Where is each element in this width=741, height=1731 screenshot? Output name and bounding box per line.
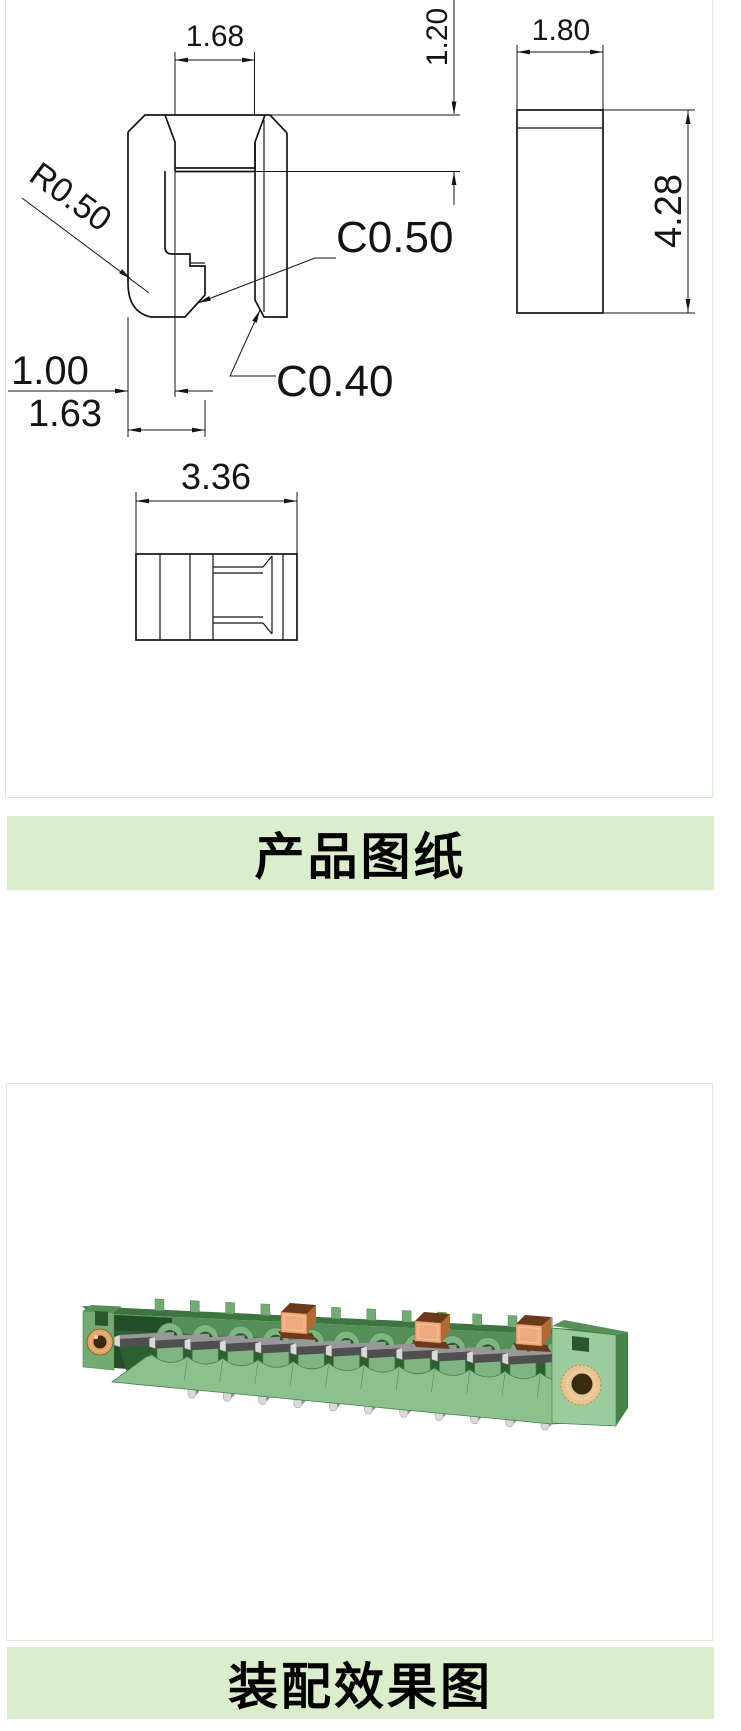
dim-slot-width: 1.68 — [186, 20, 244, 53]
dim-base-width: 1.63 — [28, 393, 102, 435]
callout-chamfer-lower: C0.40 — [276, 357, 393, 406]
dim-hook-width: 1.00 — [11, 349, 89, 393]
dim-side-height: 4.28 — [648, 174, 690, 248]
dim-slot-depth: 1.20 — [421, 8, 454, 66]
terminal-block-3d-render — [60, 1290, 660, 1460]
view-bottom — [136, 492, 297, 640]
technical-drawing: 1.68 1.20 1.80 4.28 1.00 1.63 3.36 R0.50… — [0, 0, 741, 810]
assembly-banner-label: 装配效果图 — [228, 1647, 493, 1719]
dim-overall-width: 3.36 — [181, 456, 251, 497]
callout-chamfer-upper: C0.50 — [336, 213, 453, 262]
product-drawing-banner: 产品图纸 — [7, 816, 714, 890]
product-drawing-banner-label: 产品图纸 — [255, 817, 467, 889]
assembly-banner: 装配效果图 — [7, 1647, 714, 1719]
dim-side-width: 1.80 — [532, 14, 590, 47]
callout-radius: R0.50 — [23, 155, 119, 239]
